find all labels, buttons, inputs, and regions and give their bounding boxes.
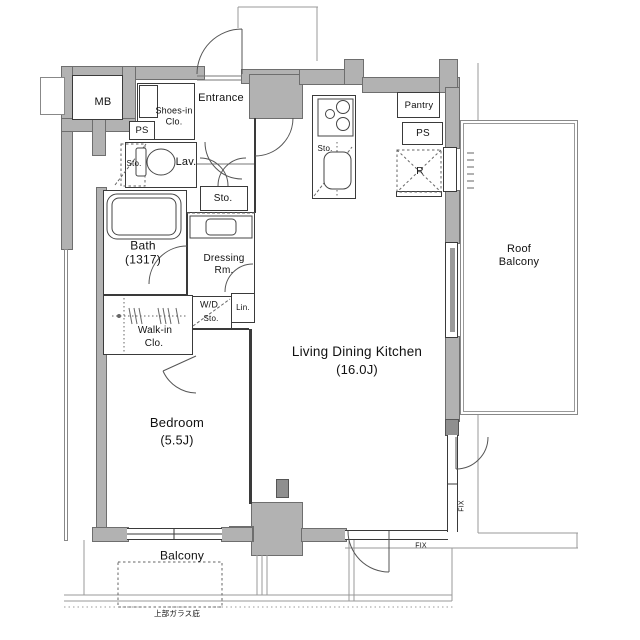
label-shoes-1: Shoes-in (155, 106, 192, 115)
label-washer-storage: Sto. (203, 315, 218, 323)
label-mb: MB (95, 97, 112, 109)
toilet-icon (136, 148, 175, 176)
walkin-door-arc (163, 356, 196, 393)
label-fix-bottom: FIX (415, 542, 427, 549)
label-ldk-size: (16.0J) (336, 363, 378, 377)
label-roof-balcony-1: Roof (507, 244, 531, 256)
label-ps-right: PS (416, 129, 430, 140)
label-dressing-2: Rm. (215, 266, 234, 277)
label-bedroom: Bedroom (150, 416, 204, 430)
label-bath-size: (1317) (125, 254, 161, 267)
entrance-door-arc (197, 29, 242, 74)
roof-balcony-door-arc (456, 437, 488, 469)
label-bath: Bath (130, 240, 156, 253)
label-lav: Lav. (176, 157, 197, 169)
storage-double-door-arc (200, 158, 246, 186)
label-ldk: Living Dining Kitchen (292, 345, 422, 359)
sink-icon (324, 152, 351, 189)
label-walkin-2: Clo. (145, 339, 164, 350)
floorplan: MB Shoes-in Clo. PS Entrance Sto. Lav. S… (0, 0, 640, 640)
label-fridge: R (416, 167, 423, 178)
label-pantry: Pantry (405, 101, 434, 111)
site-lines (64, 7, 578, 607)
louver-grill (467, 153, 474, 188)
label-kitchen-storage: Sto. (317, 145, 332, 153)
washbasin-icon (190, 216, 252, 238)
label-bedroom-size: (5.5J) (160, 434, 193, 447)
label-hall-storage: Sto. (214, 194, 233, 205)
label-walkin-1: Walk-in (138, 326, 172, 337)
label-roof-balcony-2: Balcony (499, 257, 540, 269)
label-glass-canopy: 上部ガラス庇 (154, 610, 200, 618)
label-fix-right: FIX (458, 500, 465, 512)
label-toilet-storage: Sto. (126, 160, 141, 168)
stove-icon (318, 99, 353, 136)
glass-canopy-outline (118, 562, 222, 607)
kitchen-door-arc (255, 118, 293, 156)
label-dressing-1: Dressing (203, 254, 244, 265)
label-balcony: Balcony (160, 550, 204, 563)
label-linen: Lin. (236, 304, 250, 312)
label-entrance: Entrance (198, 93, 244, 105)
bathtub-icon (107, 194, 181, 239)
label-ps-left: PS (135, 126, 148, 136)
label-shoes-2: Clo. (166, 117, 183, 126)
label-washer: W/D (200, 300, 218, 309)
